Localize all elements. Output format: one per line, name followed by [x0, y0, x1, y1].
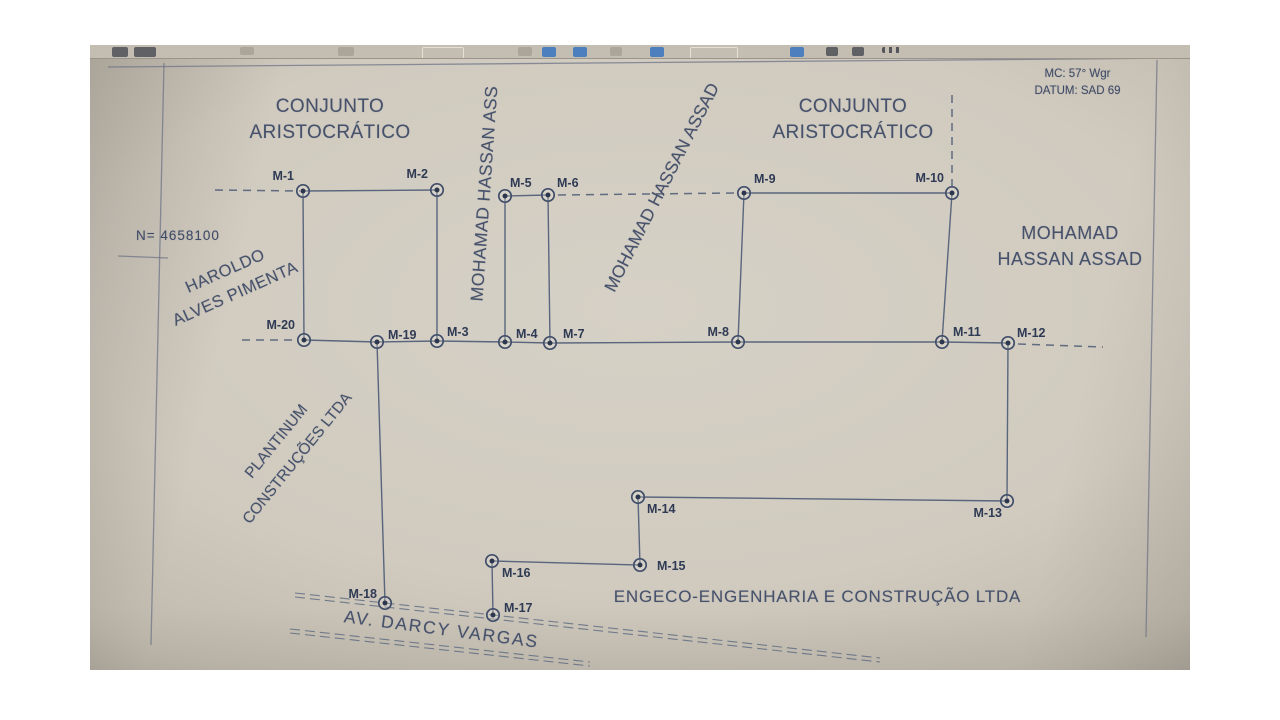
solid-boundary-line	[303, 190, 437, 191]
solid-boundary-line	[377, 342, 385, 603]
marker-label: M-20	[267, 318, 296, 332]
solid-boundary-line	[638, 497, 1007, 501]
toolbar-icon-12[interactable]	[790, 47, 804, 57]
solid-boundary-line	[942, 193, 952, 342]
survey-marker-m-2: M-2	[406, 167, 443, 196]
marker-dot-icon	[950, 191, 955, 196]
toolbar-icon-3[interactable]	[240, 47, 254, 55]
frame-boundary-line	[118, 256, 168, 258]
map-info: MC: 57° Wgr DATUM: SAD 69	[1015, 66, 1140, 100]
marker-label: M-1	[272, 169, 294, 183]
dashed-boundary-line	[1018, 344, 1103, 347]
solid-boundary-line	[738, 193, 744, 342]
marker-label: M-9	[754, 172, 776, 186]
screen-photo: M-1M-2M-5M-6M-9M-10M-20M-19M-3M-4M-7M-8M…	[90, 45, 1190, 670]
marker-dot-icon	[491, 613, 496, 618]
solid-boundary-line	[638, 497, 640, 565]
marker-dot-icon	[302, 338, 307, 343]
toolbar-icon-9[interactable]	[610, 47, 622, 56]
toolbar-icon-2[interactable]	[134, 47, 156, 57]
datum-label: DATUM: SAD 69	[1015, 83, 1140, 100]
survey-marker-m-6: M-6	[542, 176, 579, 201]
marker-dot-icon	[490, 559, 495, 564]
marker-dot-icon	[375, 340, 380, 345]
marker-dot-icon	[742, 191, 747, 196]
marker-dot-icon	[503, 194, 508, 199]
area-label-engeco-engenharia: ENGECO-ENGENHARIA E CONSTRUÇÃO LTDA	[595, 587, 1040, 607]
toolbar-icon-14[interactable]	[852, 47, 864, 56]
toolbar-icon-7[interactable]	[542, 47, 556, 57]
area-label-conjunto-aristocratico-right: CONJUNTO ARISTOCRÁTICO	[743, 94, 963, 146]
toolbar-icon-4[interactable]	[338, 47, 354, 56]
marker-dot-icon	[636, 495, 641, 500]
marker-dot-icon	[736, 340, 741, 345]
survey-marker-m-5: M-5	[499, 176, 532, 202]
marker-label: M-2	[406, 167, 428, 181]
marker-dot-icon	[301, 189, 306, 194]
marker-dot-icon	[435, 339, 440, 344]
solid-boundary-line	[304, 340, 377, 342]
area-label-mohamad-hassan-assad-right: MOHAMAD HASSAN ASSAD	[960, 220, 1180, 272]
toolbar-icon-8[interactable]	[573, 47, 587, 57]
marker-label: M-10	[916, 171, 945, 185]
marker-label: M-4	[516, 327, 538, 341]
survey-marker-m-9: M-9	[738, 172, 776, 199]
toolbar-icon-11[interactable]	[690, 47, 738, 59]
solid-boundary-line	[1007, 343, 1008, 501]
marker-dot-icon	[1005, 499, 1010, 504]
marker-dot-icon	[1006, 341, 1011, 346]
solid-boundary-line	[550, 342, 738, 343]
toolbar	[90, 45, 1190, 59]
dashed-boundary-line	[215, 190, 300, 191]
marker-label: M-14	[647, 502, 676, 516]
north-coordinate-label: N= 4658100	[136, 228, 220, 243]
toolbar-icon-5[interactable]	[422, 47, 464, 59]
solid-boundary-line	[492, 561, 640, 565]
area-label-conjunto-aristocratico-left: CONJUNTO ARISTOCRÁTICO	[220, 94, 440, 146]
solid-boundary-line	[492, 561, 493, 615]
solid-boundary-line	[942, 342, 1008, 343]
marker-dot-icon	[435, 188, 440, 193]
toolbar-icon-1[interactable]	[112, 47, 128, 57]
meridian-label: MC: 57° Wgr	[1015, 66, 1140, 83]
survey-marker-m-1: M-1	[272, 169, 309, 197]
marker-dot-icon	[546, 193, 551, 198]
marker-label: M-13	[974, 506, 1003, 520]
marker-label: M-17	[504, 601, 533, 615]
marker-dot-icon	[548, 341, 553, 346]
toolbar-icon-6[interactable]	[518, 47, 532, 56]
marker-label: M-8	[707, 325, 729, 339]
marker-dot-icon	[940, 340, 945, 345]
marker-dot-icon	[383, 601, 388, 606]
survey-marker-m-12: M-12	[1002, 326, 1046, 349]
marker-label: M-18	[349, 587, 378, 601]
solid-boundary-line	[548, 195, 550, 343]
survey-marker-m-13: M-13	[974, 495, 1014, 520]
survey-marker-m-19: M-19	[371, 328, 417, 348]
survey-marker-m-15: M-15	[634, 559, 686, 573]
toolbar-icon-10[interactable]	[650, 47, 664, 57]
marker-dot-icon	[638, 563, 643, 568]
marker-label: M-12	[1017, 326, 1046, 340]
marker-label: M-16	[502, 566, 531, 580]
frame-boundary-line	[151, 63, 164, 645]
toolbar-icon-15[interactable]	[882, 47, 900, 53]
marker-label: M-11	[953, 325, 981, 339]
marker-label: M-15	[657, 559, 686, 573]
marker-dot-icon	[503, 340, 508, 345]
marker-label: M-19	[388, 328, 417, 342]
marker-label: M-6	[557, 176, 579, 190]
solid-boundary-line	[437, 341, 505, 342]
marker-label: M-5	[510, 176, 532, 190]
frame-boundary-line	[1146, 60, 1157, 637]
marker-label: M-7	[563, 327, 585, 341]
toolbar-icon-13[interactable]	[826, 47, 838, 56]
